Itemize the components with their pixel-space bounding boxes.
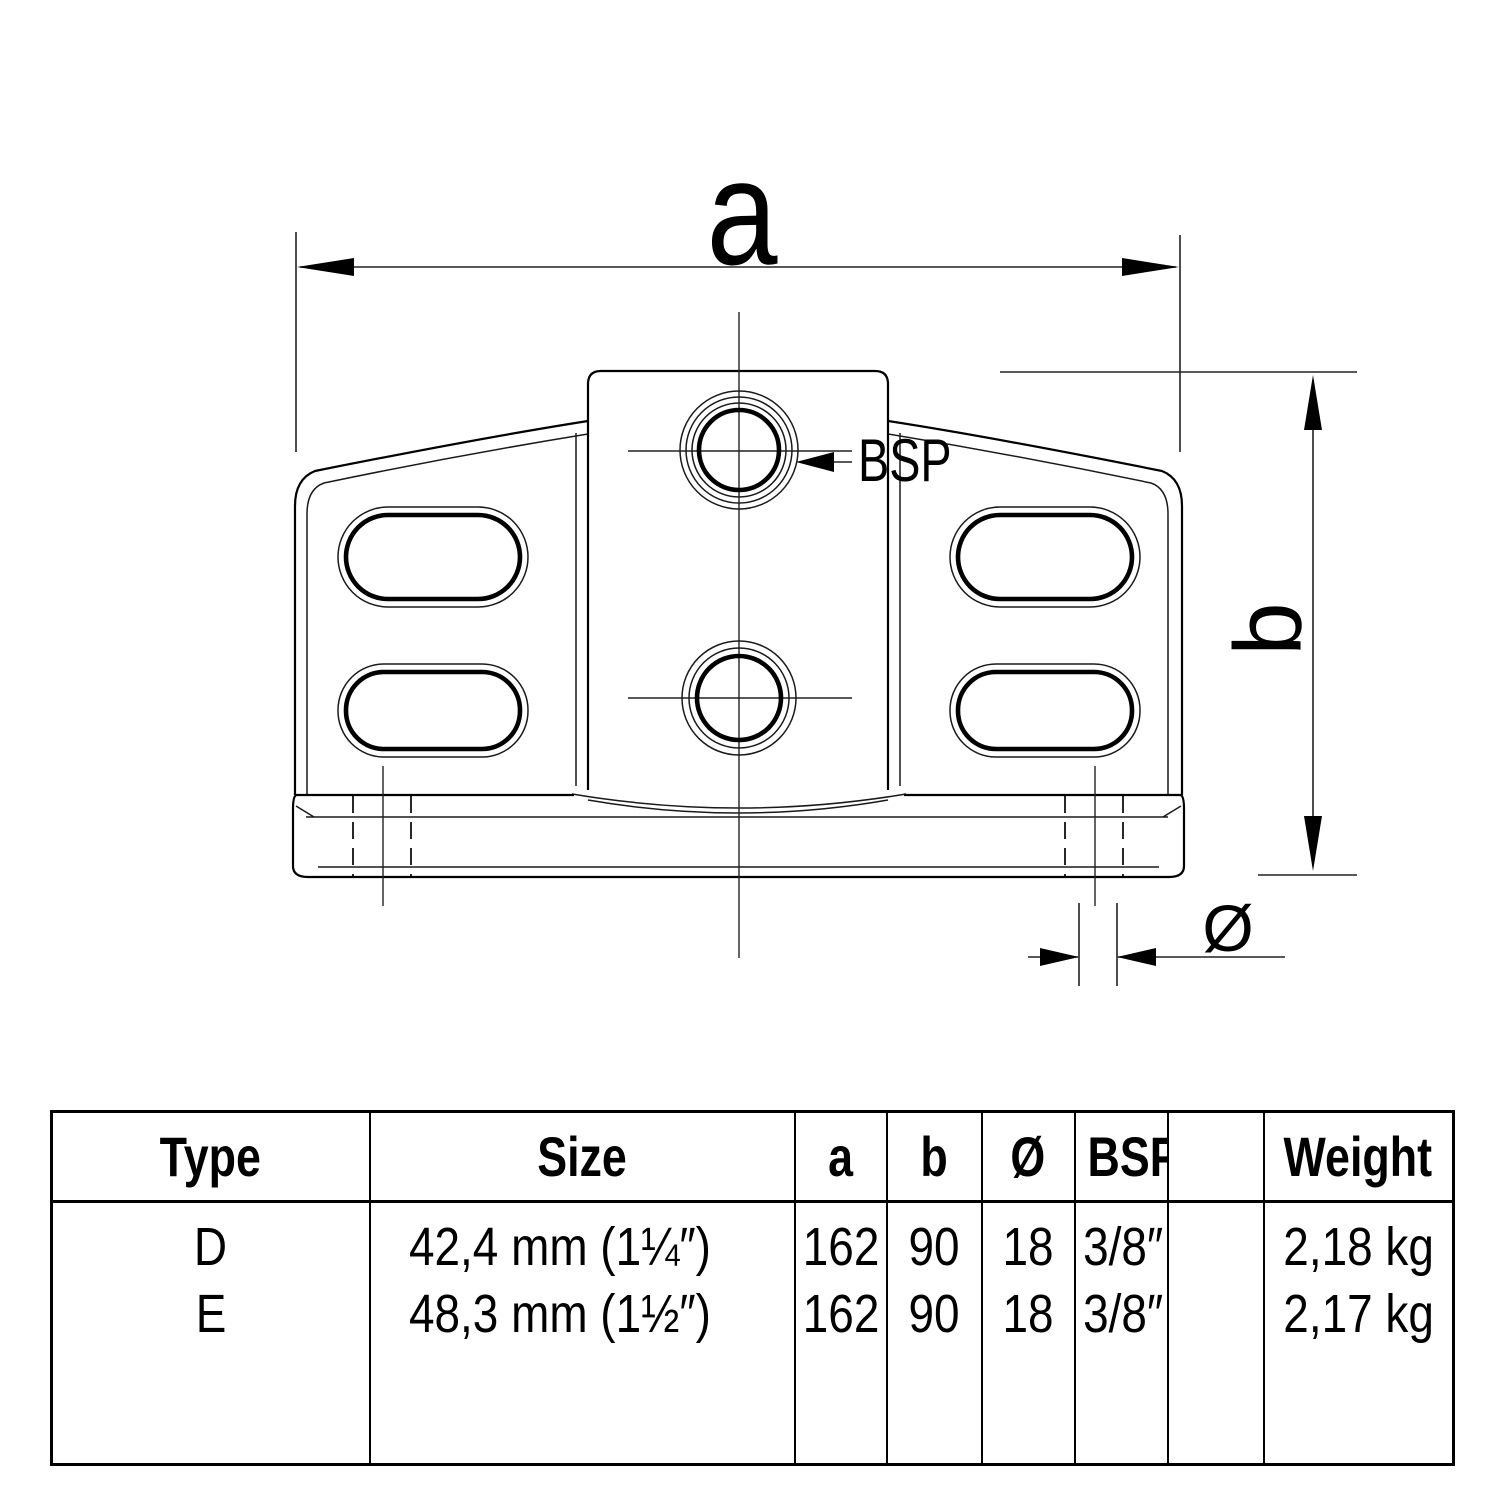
dim-dia-label: Ø — [1202, 891, 1253, 965]
technical-drawing: a — [0, 0, 1501, 1101]
dim-b-label: b — [1215, 602, 1322, 655]
dimension-b: b — [1000, 372, 1357, 875]
table-row-type-e: E 48,3 mm (1½″) 162 90 18 3/8″ 2,17 kg — [52, 1283, 1454, 1345]
dim-dia-arrow-right — [1117, 948, 1156, 966]
col-header-size: Size — [370, 1112, 795, 1202]
cell-size-e: 48,3 mm (1½″) — [370, 1283, 795, 1345]
page: a — [0, 0, 1501, 1501]
center-column — [588, 371, 888, 790]
table-filler-row — [52, 1345, 1454, 1465]
slot-right-upper — [958, 515, 1132, 599]
plate-corner-diag-right — [1163, 806, 1181, 817]
cell-diameter-e: 18 — [982, 1283, 1075, 1345]
plate-corner-diag-left — [296, 806, 314, 817]
slot-left-lower — [346, 672, 520, 749]
col-header-weight: Weight — [1264, 1112, 1454, 1202]
slot-right-lower — [958, 672, 1132, 749]
dim-dia-arrow-left — [1040, 948, 1079, 966]
dim-a-arrow-right — [1122, 258, 1179, 276]
cell-a-e: 162 — [795, 1283, 887, 1345]
bsp-arrow-head — [796, 452, 834, 472]
cell-bsp-d: 3/8″ — [1075, 1202, 1168, 1284]
dim-b-arrow-down — [1304, 816, 1322, 871]
left-wing-outline — [295, 421, 588, 795]
dim-a-arrow-left — [297, 258, 354, 276]
cell-bsp-e: 3/8″ — [1075, 1283, 1168, 1345]
dimension-diameter: Ø — [1028, 891, 1285, 986]
cell-b-d: 90 — [887, 1202, 982, 1284]
cell-size-d: 42,4 mm (1¼″) — [370, 1202, 795, 1284]
dim-b-arrow-up — [1304, 375, 1322, 430]
cell-empty-d — [1168, 1202, 1264, 1284]
cell-type-d: D — [52, 1202, 370, 1284]
slot-left-upper — [346, 515, 520, 599]
cell-b-e: 90 — [887, 1283, 982, 1345]
cell-weight-d: 2,18 kg — [1264, 1202, 1454, 1284]
cell-weight-e: 2,17 kg — [1264, 1283, 1454, 1345]
col-header-type: Type — [52, 1112, 370, 1202]
dim-a-label: a — [707, 129, 778, 296]
cell-empty-e — [1168, 1283, 1264, 1345]
col-header-bsp: BSP — [1075, 1112, 1168, 1202]
col-header-b: b — [887, 1112, 982, 1202]
col-header-empty — [1168, 1112, 1264, 1202]
bsp-callout: BSP — [796, 427, 952, 494]
spec-table: Type Size a b Ø BSP Weight D 42,4 mm (1¼… — [50, 1110, 1455, 1466]
table-row-type-d: D 42,4 mm (1¼″) 162 90 18 3/8″ 2,18 kg — [52, 1202, 1454, 1284]
bsp-label: BSP — [858, 427, 952, 494]
col-header-diameter: Ø — [982, 1112, 1075, 1202]
cell-diameter-d: 18 — [982, 1202, 1075, 1284]
col-header-a: a — [795, 1112, 887, 1202]
cell-a-d: 162 — [795, 1202, 887, 1284]
header-row: Type Size a b Ø BSP Weight — [52, 1112, 1454, 1202]
cell-type-e: E — [52, 1283, 370, 1345]
